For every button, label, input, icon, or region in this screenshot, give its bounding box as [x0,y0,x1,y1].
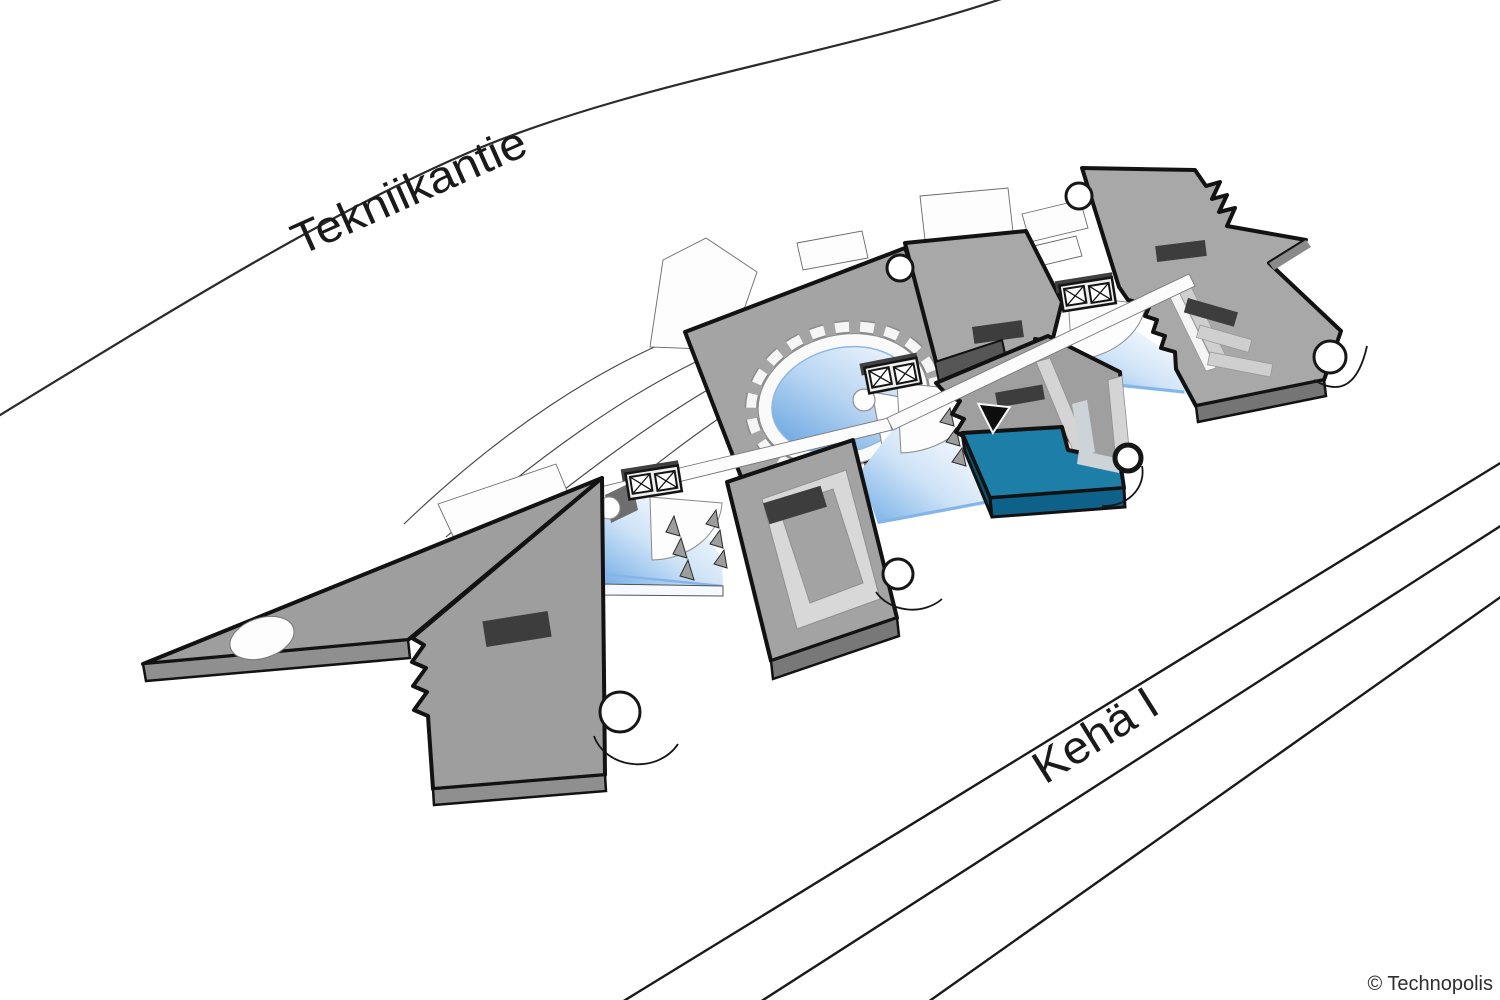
cylinder-icon [1066,183,1092,209]
campus-map: Tekniikantie Kehä I [0,0,1500,1000]
campus-map-page: Tekniikantie Kehä I [0,0,1500,1000]
cylinder-icon [1314,341,1346,373]
elevator-icon-pair-west [621,460,683,500]
cylinder-icon [600,692,640,732]
copyright-text: © Technopolis [1367,973,1493,995]
building-west-arrow[interactable] [143,478,606,805]
cylinder-icon [883,559,913,589]
road-keha-line-3 [928,596,1500,1000]
cylinder-icon [887,255,913,281]
road-label-keha-1: Kehä I [1023,676,1168,793]
cylinder-icon [1115,445,1141,471]
road-label-tekniikantie: Tekniikantie [283,116,534,265]
